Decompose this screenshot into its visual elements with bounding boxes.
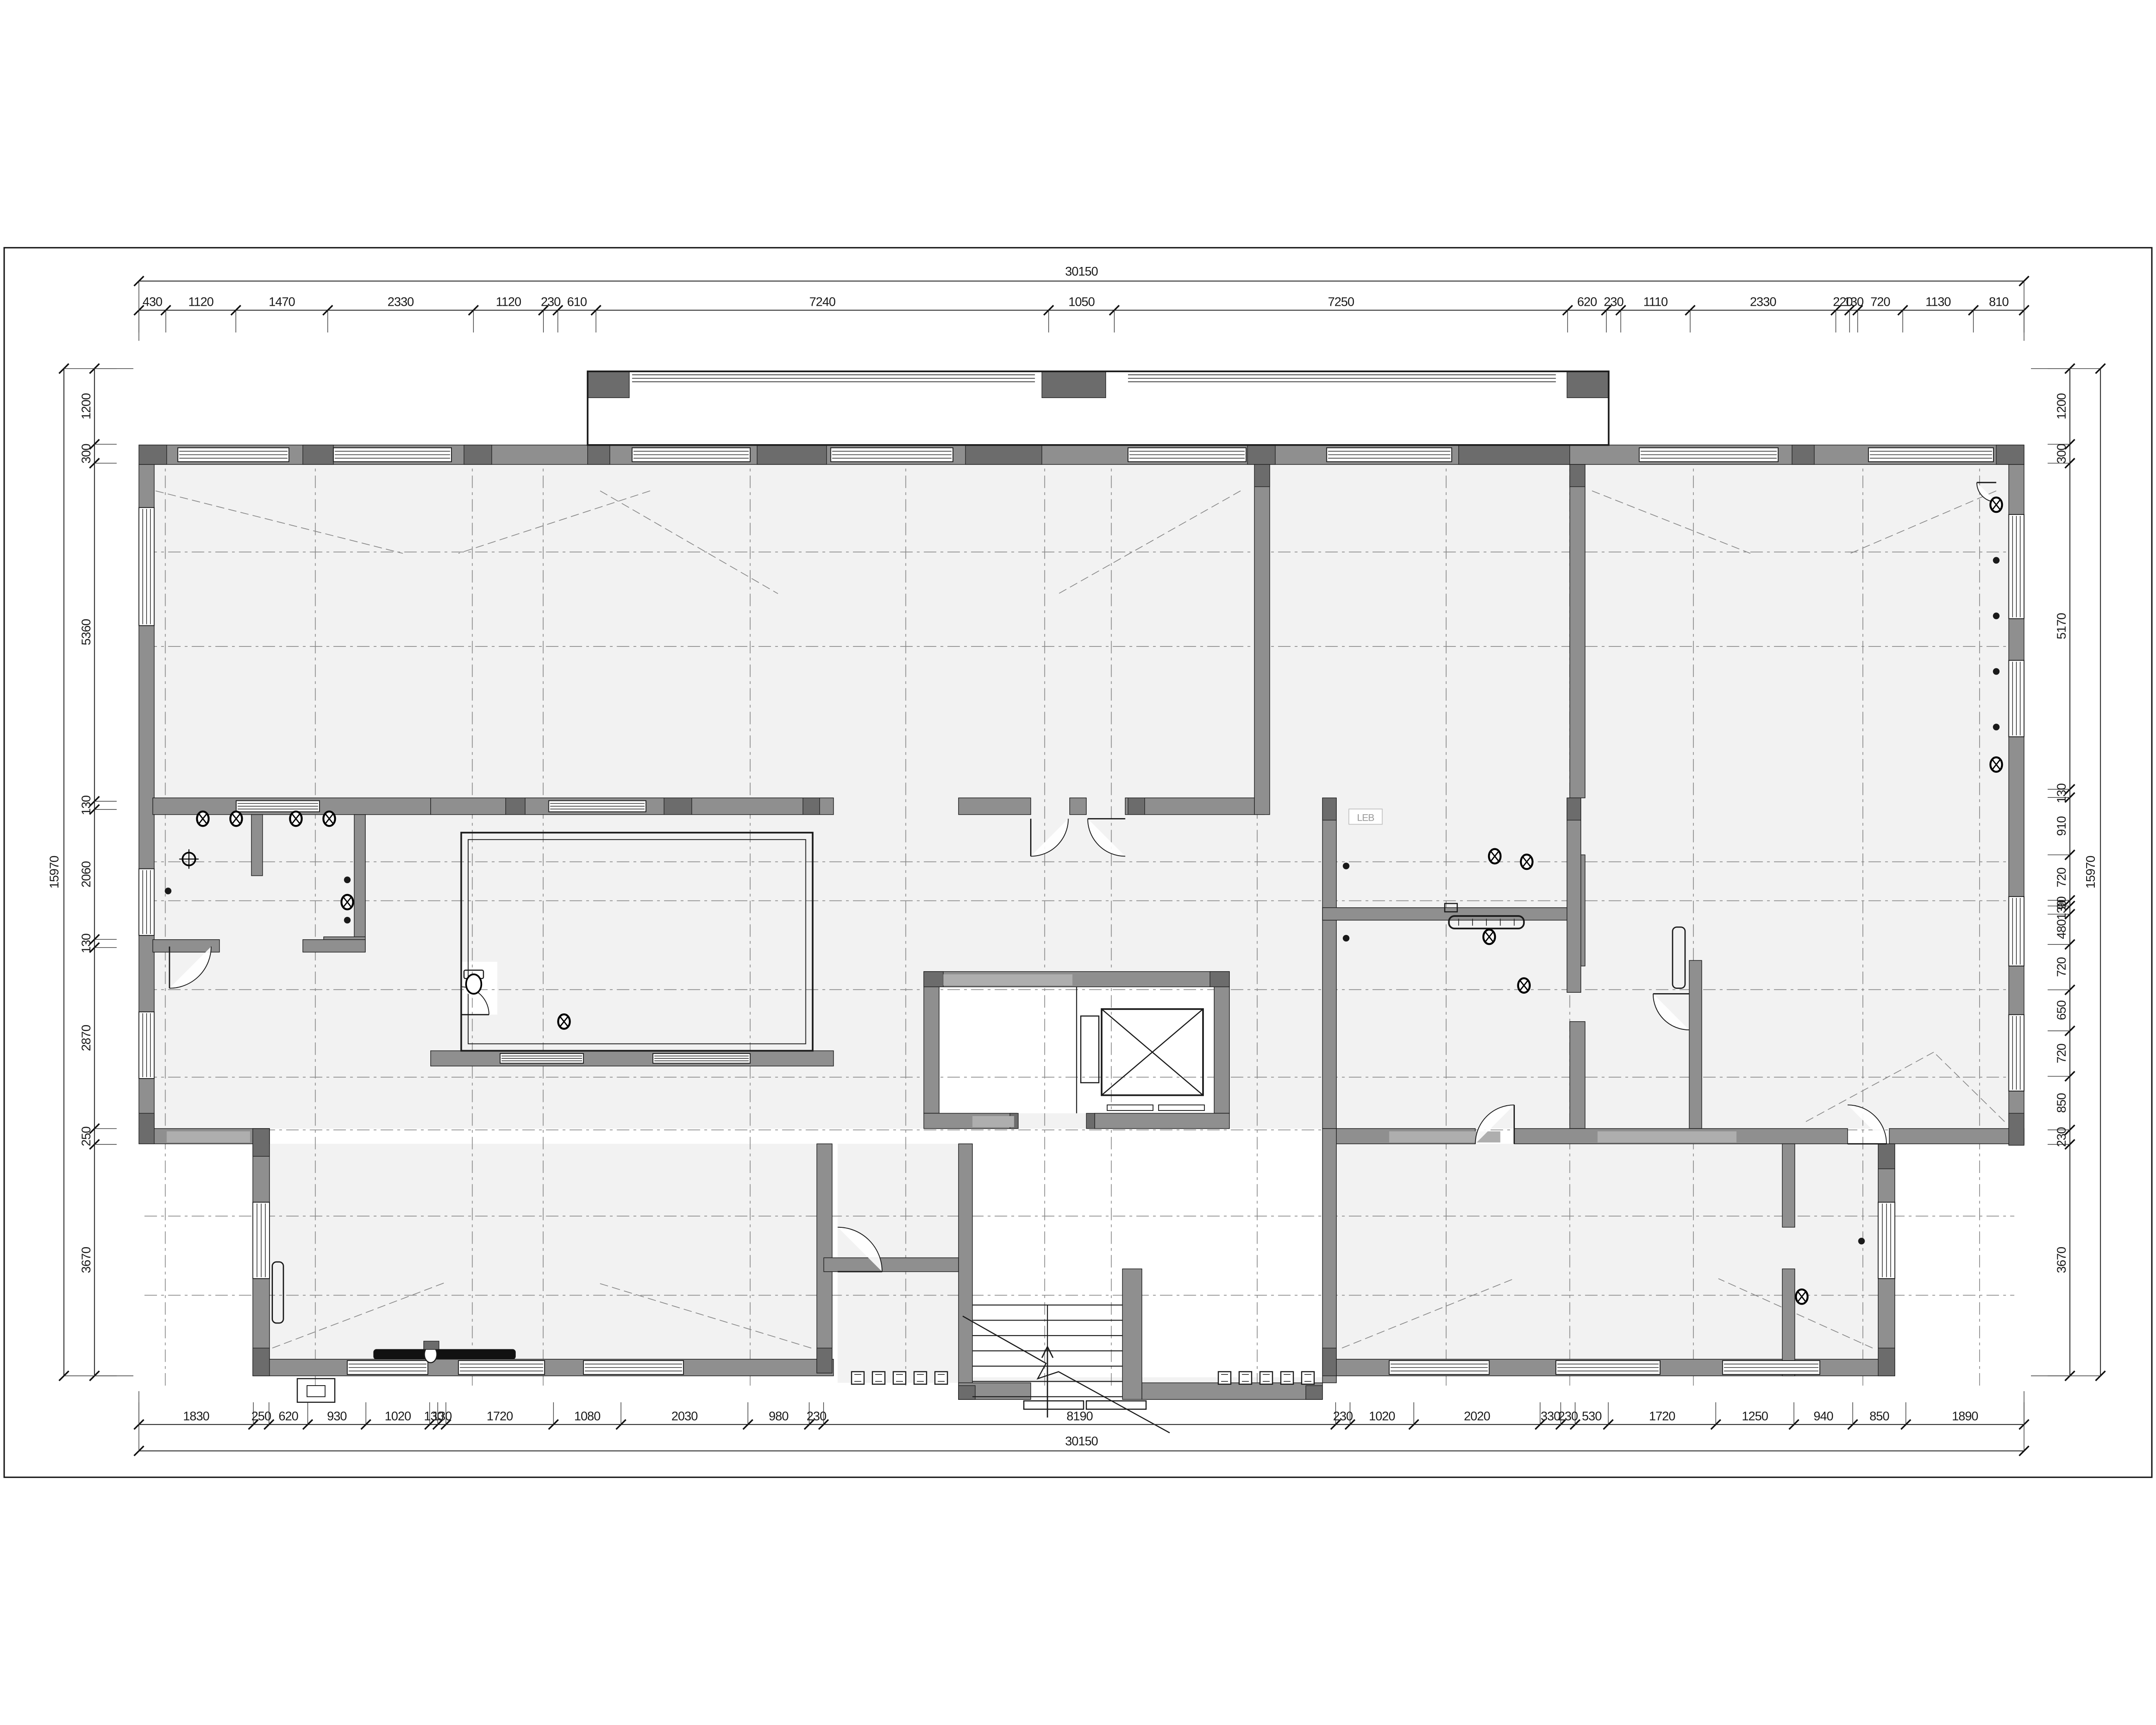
svg-text:130: 130 [79,796,93,815]
svg-text:1830: 1830 [183,1409,210,1423]
svg-text:1890: 1890 [1952,1409,1978,1423]
svg-text:720: 720 [2055,1044,2069,1063]
svg-text:940: 940 [1814,1409,1833,1423]
svg-text:250: 250 [79,1127,93,1146]
svg-text:2330: 2330 [1750,295,1776,309]
svg-text:3670: 3670 [2055,1247,2069,1273]
svg-text:980: 980 [769,1409,788,1423]
svg-text:230: 230 [2055,1127,2069,1147]
svg-text:230: 230 [541,295,560,309]
svg-text:15970: 15970 [2084,856,2098,889]
svg-text:720: 720 [2055,957,2069,977]
svg-text:1720: 1720 [1649,1409,1675,1423]
svg-text:230: 230 [1558,1409,1577,1423]
svg-text:930: 930 [327,1409,346,1423]
svg-text:300: 300 [2055,444,2069,463]
svg-text:7250: 7250 [1328,295,1354,309]
svg-text:LEB: LEB [1357,812,1374,823]
svg-text:1470: 1470 [269,295,295,309]
svg-text:430: 430 [143,295,162,309]
svg-text:230: 230 [1333,1409,1352,1423]
svg-text:850: 850 [1870,1409,1889,1423]
svg-text:650: 650 [2055,1000,2069,1020]
svg-text:5170: 5170 [2055,613,2069,640]
svg-text:7240: 7240 [809,295,836,309]
svg-text:610: 610 [567,295,586,309]
floor-plan-canvas: LEB4301120147023301120230610724010507250… [0,0,2156,1725]
svg-text:130: 130 [2055,784,2069,803]
svg-text:1020: 1020 [385,1409,411,1423]
svg-text:850: 850 [2055,1093,2069,1113]
svg-text:330: 330 [1541,1409,1560,1423]
svg-text:3670: 3670 [79,1247,93,1273]
svg-text:1130: 1130 [1925,295,1950,309]
svg-text:8190: 8190 [1066,1409,1093,1423]
svg-text:230: 230 [1604,295,1623,309]
svg-text:910: 910 [2055,816,2069,836]
svg-text:1120: 1120 [188,295,213,309]
svg-text:1720: 1720 [487,1409,513,1423]
svg-text:1200: 1200 [2055,393,2069,420]
svg-text:230: 230 [807,1409,826,1423]
svg-text:480: 480 [2055,919,2069,939]
room-fills [154,376,2009,1383]
svg-text:1050: 1050 [1069,295,1095,309]
svg-text:300: 300 [79,444,93,463]
svg-text:1250: 1250 [1742,1409,1768,1423]
svg-text:30150: 30150 [1065,265,1098,279]
svg-text:620: 620 [279,1409,298,1423]
svg-text:250: 250 [251,1409,271,1423]
svg-text:130: 130 [2055,900,2069,920]
svg-text:1020: 1020 [1369,1409,1395,1423]
svg-text:2030: 2030 [671,1409,698,1423]
svg-text:130: 130 [432,1409,451,1423]
room-tag: LEB [1349,809,1382,824]
svg-text:15970: 15970 [47,856,61,889]
svg-text:810: 810 [1989,295,2008,309]
svg-text:1120: 1120 [496,295,521,309]
drawing-sheet: LEB4301120147023301120230610724010507250… [0,0,2156,1725]
svg-text:130: 130 [79,934,93,953]
svg-text:2060: 2060 [79,861,93,888]
svg-text:620: 620 [1577,295,1597,309]
svg-text:1080: 1080 [574,1409,601,1423]
svg-text:1110: 1110 [1643,295,1667,309]
svg-text:1200: 1200 [79,393,93,420]
svg-text:2020: 2020 [1464,1409,1490,1423]
svg-text:720: 720 [2055,868,2069,887]
svg-text:2870: 2870 [79,1025,93,1051]
svg-text:2330: 2330 [388,295,414,309]
svg-text:30150: 30150 [1065,1434,1098,1448]
svg-text:720: 720 [1871,295,1890,309]
svg-text:130: 130 [1844,295,1863,309]
svg-text:530: 530 [1582,1409,1601,1423]
svg-text:5360: 5360 [79,619,93,646]
